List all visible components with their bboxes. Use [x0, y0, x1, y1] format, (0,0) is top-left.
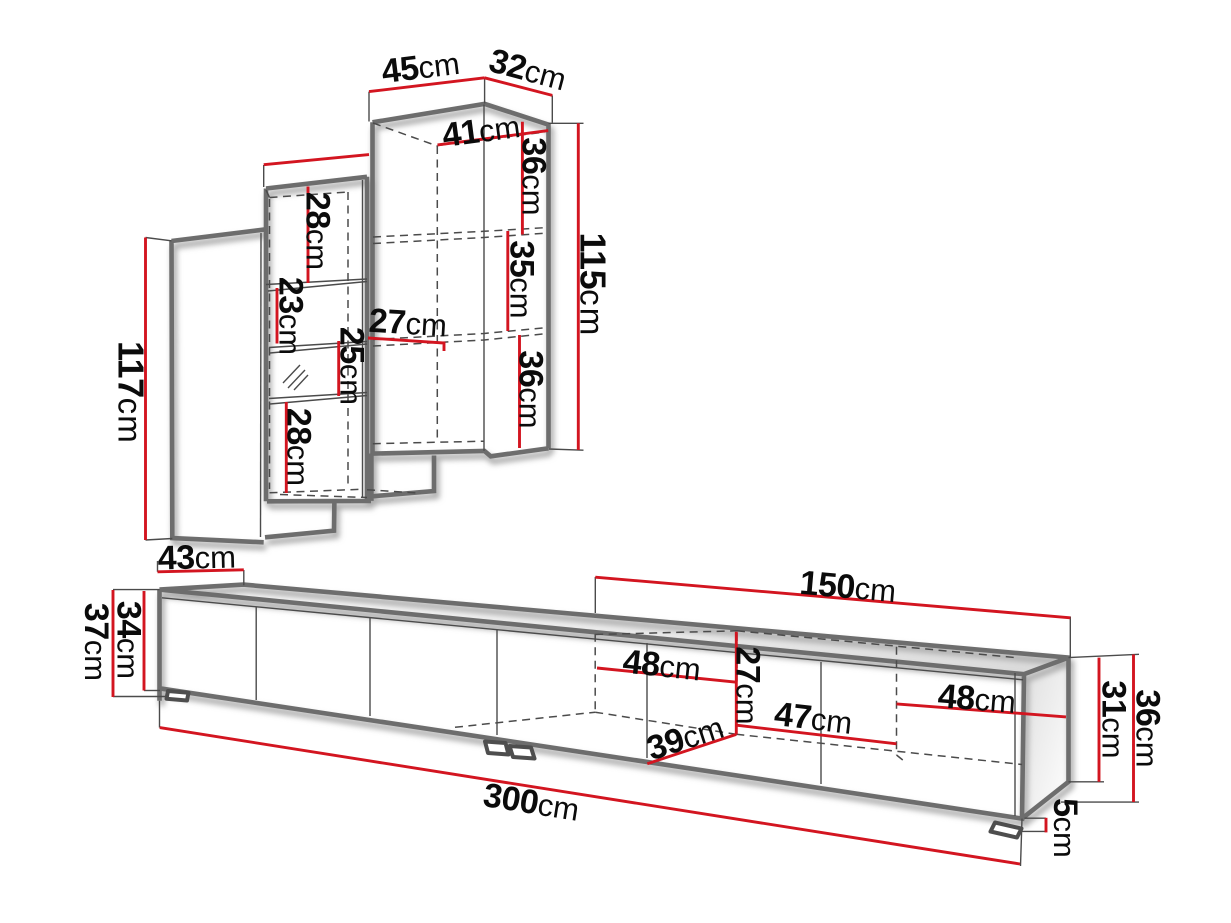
svg-text:36cm: 36cm [515, 137, 553, 215]
svg-text:37cm: 37cm [77, 603, 115, 681]
svg-text:23cm: 23cm [272, 277, 310, 355]
svg-text:43cm: 43cm [157, 537, 236, 577]
svg-text:34cm: 34cm [110, 601, 148, 679]
svg-text:31cm: 31cm [1095, 680, 1133, 758]
svg-text:115cm: 115cm [572, 233, 613, 338]
svg-text:48cm: 48cm [937, 677, 1018, 721]
svg-text:117cm: 117cm [111, 341, 152, 444]
svg-text:25cm: 25cm [333, 327, 371, 405]
svg-text:27cm: 27cm [368, 302, 448, 345]
svg-text:27cm: 27cm [729, 646, 767, 724]
svg-text:5cm: 5cm [1046, 798, 1084, 858]
svg-text:36cm: 36cm [1129, 689, 1167, 767]
svg-text:28cm: 28cm [280, 408, 318, 486]
svg-text:36cm: 36cm [512, 350, 550, 428]
svg-text:35cm: 35cm [503, 240, 541, 318]
svg-text:28cm: 28cm [299, 192, 337, 270]
